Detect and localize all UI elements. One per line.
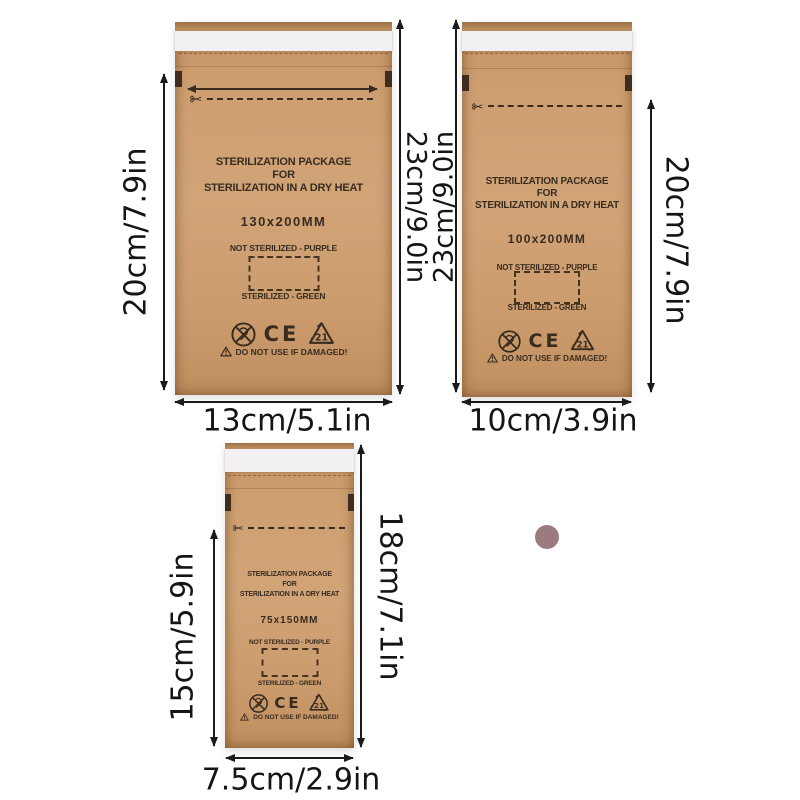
warning-text: DO NOT USE IF DAMAGED! xyxy=(502,354,607,363)
pouch-cut-line xyxy=(472,100,622,112)
dimension-label-bag2-bottom: 10cm/3.9in xyxy=(468,404,637,439)
pouch-size-text: 75x150MM xyxy=(225,615,354,626)
cut-dashes xyxy=(248,527,345,529)
warning-triangle-icon xyxy=(487,353,498,363)
do-not-reuse-icon xyxy=(230,321,257,348)
pouch-size-text: 130x200MM xyxy=(175,214,392,229)
dimension-label-bag1-bottom: 13cm/5.1in xyxy=(202,404,371,439)
not-sterilized-label: NOT STERILIZED - PURPLE xyxy=(175,243,392,253)
recycle-triangle-icon: 21 xyxy=(307,692,331,714)
sterilization-indicator-box xyxy=(261,648,318,677)
pouch-side-tab xyxy=(225,494,231,511)
dimension-label-bag1-left: 20cm/7.9in xyxy=(119,147,154,316)
pouch-title-line: STERILIZATION IN A DRY HEAT xyxy=(225,591,354,598)
pouch-cut-line xyxy=(233,522,345,534)
ce-mark: CE xyxy=(264,322,300,346)
height-arrow-bag1-left xyxy=(163,74,165,390)
pouch-title-line: STERILIZATION PACKAGE xyxy=(175,156,392,168)
cut-dashes xyxy=(207,98,373,100)
pouch-fold-crease xyxy=(175,66,392,67)
pouch-size-text: 100x200MM xyxy=(462,232,632,246)
scissors-icon xyxy=(233,523,244,533)
height-arrow-bag2-right xyxy=(650,100,652,392)
ce-mark: CE xyxy=(274,694,301,712)
total-height-arrow-bag3-right xyxy=(360,445,362,747)
pouch-width-arrow xyxy=(188,88,377,90)
pouch-title-line: FOR xyxy=(225,581,354,588)
pouch-perforation-line xyxy=(228,475,352,476)
product-photo-canvas: STERILIZATION PACKAGE FOR STERILIZATION … xyxy=(0,0,800,800)
pouch-seal-strip xyxy=(175,31,392,51)
dimension-label-bag3-bottom: 7.5cm/2.9in xyxy=(202,763,381,798)
pouch-top-edge xyxy=(462,22,632,31)
sterilized-label: STERILIZED - GREEN xyxy=(225,680,354,687)
not-sterilized-label: NOT STERILIZED - PURPLE xyxy=(225,639,354,646)
scissors-icon xyxy=(472,101,484,112)
warning-text: DO NOT USE IF DAMAGED! xyxy=(236,347,348,357)
pouch-side-tab xyxy=(625,75,632,91)
sterilization-pouch-130x200: STERILIZATION PACKAGE FOR STERILIZATION … xyxy=(175,22,392,395)
sterilization-pouch-75x150: STERILIZATION PACKAGE FOR STERILIZATION … xyxy=(225,443,354,748)
dimension-label-bag1-right: 23cm/9.0in xyxy=(401,131,432,283)
recycle-triangle-icon: 21 xyxy=(306,320,337,348)
dimension-label-bag3-right: 18cm/7.1in xyxy=(373,511,408,680)
warning-row: DO NOT USE IF DAMAGED! xyxy=(225,713,354,721)
recycle-code: 21 xyxy=(314,701,324,710)
pouch-fold-crease xyxy=(462,68,632,69)
warning-triangle-icon xyxy=(240,713,249,721)
pouch-side-tab xyxy=(462,75,469,91)
sterilized-label: STERILIZED - GREEN xyxy=(462,303,632,312)
pouch-title-line: STERILIZATION PACKAGE xyxy=(462,176,632,187)
sterilization-pouch-100x200: STERILIZATION PACKAGE FOR STERILIZATION … xyxy=(462,22,632,397)
cut-dashes xyxy=(488,105,622,107)
dimension-label-bag2-left: 23cm/9.0in xyxy=(429,131,460,283)
pouch-side-tab xyxy=(348,494,354,511)
do-not-reuse-icon xyxy=(248,693,269,714)
sterilization-indicator-box xyxy=(514,271,580,304)
pouch-fold-crease xyxy=(225,488,354,489)
pouch-title-line: FOR xyxy=(175,169,392,181)
height-arrow-bag3-left xyxy=(213,530,215,746)
pouch-seal-strip xyxy=(462,31,632,51)
width-arrow-bag3-bottom xyxy=(226,757,353,759)
warning-row: DO NOT USE IF DAMAGED! xyxy=(462,353,632,363)
sterilization-indicator-box xyxy=(248,256,319,291)
scissors-icon xyxy=(190,93,203,105)
certification-icons-row: CE 21 xyxy=(462,326,632,356)
pouch-top-edge xyxy=(175,22,392,31)
do-not-reuse-icon xyxy=(497,329,522,354)
ce-mark: CE xyxy=(529,330,562,352)
warning-text: DO NOT USE IF DAMAGED! xyxy=(253,714,339,721)
pouch-title-line: STERILIZATION IN A DRY HEAT xyxy=(462,200,632,211)
pouch-side-tab xyxy=(385,71,392,87)
pouch-seal-strip xyxy=(225,449,354,472)
recycle-code: 21 xyxy=(315,333,328,344)
recycle-code: 21 xyxy=(577,340,589,350)
pouch-title-line: FOR xyxy=(462,188,632,199)
pouch-perforation-line xyxy=(465,53,628,54)
pouch-side-tab xyxy=(175,71,182,87)
pouch-title-line: STERILIZATION IN A DRY HEAT xyxy=(175,182,392,194)
dimension-label-bag2-right: 20cm/7.9in xyxy=(659,155,694,324)
pouch-perforation-line xyxy=(179,53,387,54)
pouch-cut-line xyxy=(190,93,373,105)
pouch-title-line: STERILIZATION PACKAGE xyxy=(225,571,354,578)
sterilized-label: STERILIZED - GREEN xyxy=(175,291,392,301)
indicator-dot xyxy=(535,525,559,549)
warning-row: DO NOT USE IF DAMAGED! xyxy=(175,346,392,357)
warning-triangle-icon xyxy=(220,346,232,357)
dimension-label-bag3-left: 15cm/5.9in xyxy=(166,552,201,721)
recycle-triangle-icon: 21 xyxy=(568,328,597,354)
